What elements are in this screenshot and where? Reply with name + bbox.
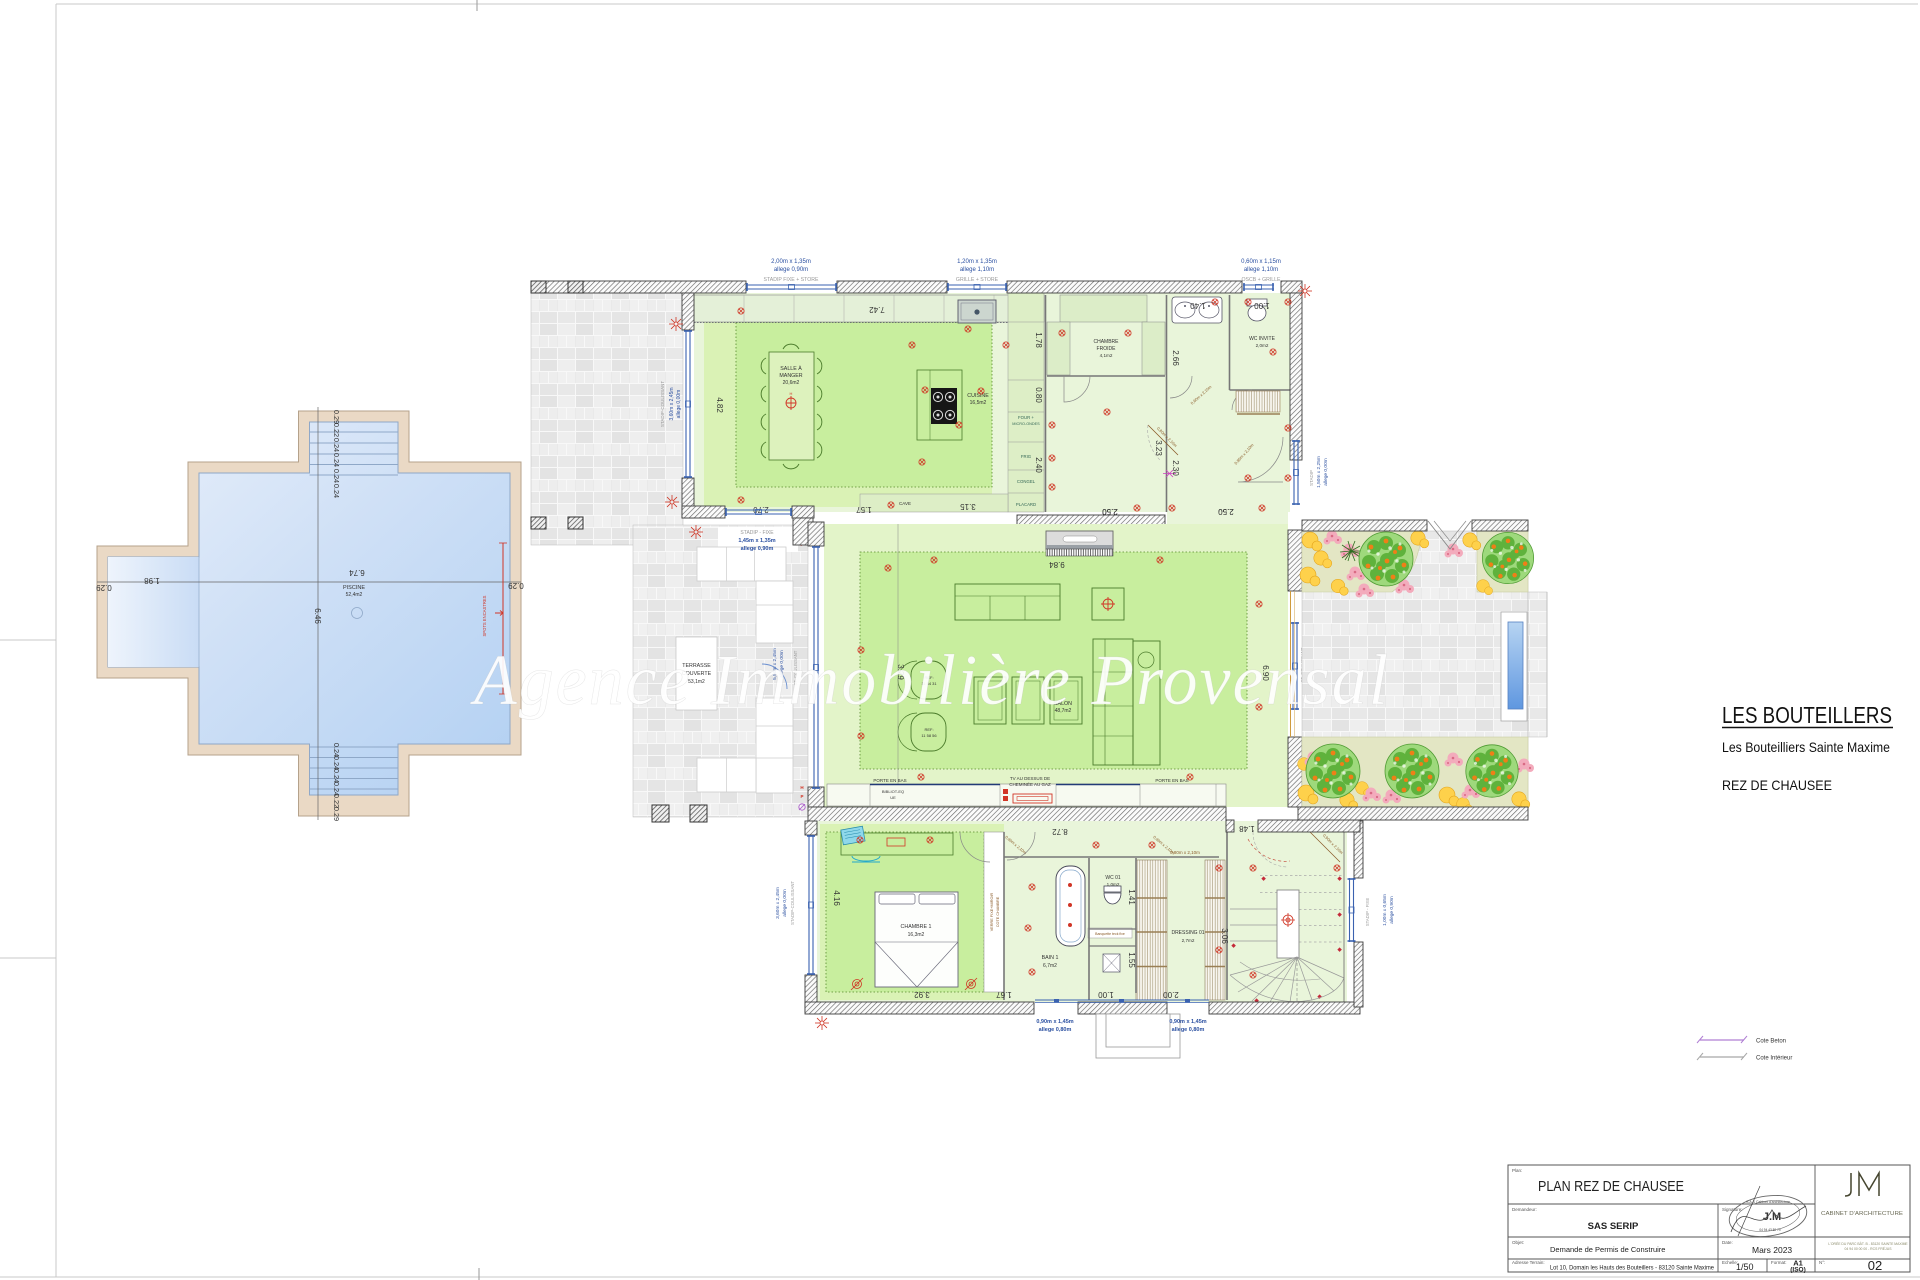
- svg-text:MANGER: MANGER: [779, 373, 802, 379]
- svg-text:(ISO): (ISO): [1790, 1267, 1806, 1274]
- svg-text:PLACARD: PLACARD: [1016, 502, 1036, 507]
- svg-text:allege 0,90m: allege 0,90m: [741, 546, 774, 552]
- svg-text:CHAMBRE: CHAMBRE: [1093, 339, 1119, 345]
- svg-text:0.29: 0.29: [96, 583, 112, 592]
- svg-text:Cote Beton: Cote Beton: [1756, 1039, 1786, 1045]
- svg-text:SALLE À: SALLE À: [780, 365, 802, 372]
- svg-text:allege 1,10m: allege 1,10m: [1244, 267, 1278, 273]
- svg-text:allege 0,80m: allege 0,80m: [1172, 1027, 1205, 1033]
- svg-text:STADIP-COULISSANT: STADIP-COULISSANT: [660, 381, 665, 427]
- svg-text:1/50: 1/50: [1736, 1262, 1754, 1272]
- svg-text:UE: UE: [890, 795, 896, 800]
- svg-text:1.00: 1.00: [1254, 301, 1270, 310]
- svg-text:1,0m2: 1,0m2: [1107, 882, 1120, 887]
- svg-text:02: 02: [1868, 1258, 1882, 1273]
- svg-text:1.40: 1.40: [1190, 301, 1206, 310]
- svg-text:4.82: 4.82: [715, 397, 724, 413]
- svg-text:Banquette teck fixe: Banquette teck fixe: [1095, 932, 1125, 936]
- svg-text:1.00: 1.00: [1098, 990, 1114, 999]
- svg-text:allege 0,00m: allege 0,00m: [782, 889, 788, 916]
- svg-text:04 94 00 00 00 - RCS FRÉJUS: 04 94 00 00 00 - RCS FRÉJUS: [1845, 1246, 1893, 1251]
- svg-text:0.29: 0.29: [508, 581, 524, 590]
- svg-text:0,80m x 2,10m: 0,80m x 2,10m: [1170, 850, 1200, 855]
- svg-text:0,60m x 1,15m: 0,60m x 1,15m: [1241, 259, 1281, 265]
- svg-text:Les Bouteilliers Sainte Maxime: Les Bouteilliers Sainte Maxime: [1722, 739, 1890, 755]
- svg-text:2,7m2: 2,7m2: [1182, 938, 1195, 943]
- svg-text:2.40: 2.40: [1034, 457, 1043, 473]
- svg-text:6,7m2: 6,7m2: [1043, 963, 1057, 969]
- svg-text:PORTE EN BAS: PORTE EN BAS: [873, 778, 906, 783]
- svg-text:allege 1,10m: allege 1,10m: [960, 267, 994, 273]
- svg-text:4.16: 4.16: [832, 890, 841, 906]
- svg-text:16,3m2: 16,3m2: [908, 932, 925, 938]
- svg-text:0.24: 0.24: [332, 469, 341, 483]
- svg-text:Date:: Date:: [1722, 1240, 1733, 1245]
- svg-text:FOUR +: FOUR +: [1018, 415, 1034, 420]
- svg-text:SAS SERIP: SAS SERIP: [1588, 1221, 1639, 1232]
- svg-text:7.42: 7.42: [869, 305, 885, 314]
- svg-text:8.72: 8.72: [1052, 827, 1068, 836]
- svg-text:2.00: 2.00: [1163, 990, 1179, 999]
- svg-text:2.66: 2.66: [1171, 350, 1180, 366]
- svg-text:1,00m x 0,65m: 1,00m x 0,65m: [1382, 894, 1388, 926]
- svg-text:1,45m x 1,35m: 1,45m x 1,35m: [738, 538, 775, 544]
- svg-text:3.06: 3.06: [1220, 928, 1229, 944]
- svg-text:2.30: 2.30: [1171, 460, 1180, 476]
- svg-text:BAIN 1: BAIN 1: [1042, 955, 1059, 961]
- svg-text:CABINET D'ARCHITECTURE: CABINET D'ARCHITECTURE: [1821, 1211, 1904, 1217]
- svg-text:9.84: 9.84: [1049, 560, 1065, 569]
- svg-text:Demandeur:: Demandeur:: [1512, 1207, 1537, 1212]
- svg-text:STADIP: STADIP: [1309, 470, 1314, 486]
- svg-text:OSCB + GRILLE: OSCB + GRILLE: [1241, 277, 1281, 283]
- svg-text:STADIP FIXE + STORE: STADIP FIXE + STORE: [764, 277, 819, 283]
- svg-text:0,90m x 1,45m: 0,90m x 1,45m: [1169, 1019, 1206, 1025]
- svg-text:L'ORÉE DU PARC BÂT. B - 83120: L'ORÉE DU PARC BÂT. B - 83120 SAINTE MAX…: [1828, 1241, 1908, 1246]
- svg-text:H: H: [800, 785, 803, 790]
- svg-text:3,60m x 2,45m: 3,60m x 2,45m: [775, 887, 781, 919]
- svg-text:Adresse Terrain:: Adresse Terrain:: [1512, 1260, 1545, 1265]
- svg-text:CUISINE: CUISINE: [967, 393, 989, 399]
- svg-text:LES BOUTEILLERS: LES BOUTEILLERS: [1722, 702, 1892, 728]
- svg-text:REF:: REF:: [924, 727, 933, 732]
- svg-text:2.50: 2.50: [1218, 507, 1234, 516]
- svg-text:H: H: [790, 391, 793, 396]
- svg-text:1.57: 1.57: [856, 505, 872, 514]
- svg-text:allege 0,90m: allege 0,90m: [774, 267, 808, 273]
- svg-text:0,90m x 1,45m: 0,90m x 1,45m: [1036, 1019, 1073, 1025]
- svg-text:Agence Immobilière Provensal: Agence Immobilière Provensal: [470, 640, 1390, 720]
- svg-text:0.80: 0.80: [1034, 387, 1043, 403]
- svg-text:CONGEL: CONGEL: [1017, 479, 1036, 484]
- svg-text:6.74: 6.74: [349, 568, 365, 577]
- svg-text:0.24: 0.24: [332, 484, 341, 498]
- svg-text:allege 0,00m: allege 0,00m: [676, 390, 682, 419]
- svg-text:Cote Intérieur: Cote Intérieur: [1756, 1056, 1792, 1062]
- svg-text:PLAN REZ DE CHAUSEE: PLAN REZ DE CHAUSEE: [1538, 1178, 1684, 1195]
- svg-text:MICRO-ONDES: MICRO-ONDES: [1012, 422, 1040, 426]
- svg-text:WC INVITE: WC INVITE: [1249, 336, 1275, 342]
- svg-text:Mars 2023: Mars 2023: [1752, 1245, 1792, 1255]
- svg-text:52,4m2: 52,4m2: [346, 592, 363, 598]
- svg-text:16,5m2: 16,5m2: [970, 400, 987, 406]
- svg-text:1.55: 1.55: [1127, 952, 1136, 968]
- svg-text:1.41: 1.41: [1127, 889, 1136, 905]
- svg-text:4,1m2: 4,1m2: [1100, 353, 1113, 358]
- svg-text:PISCINE: PISCINE: [343, 585, 365, 591]
- svg-text:CHAMBRE 1: CHAMBRE 1: [901, 924, 932, 930]
- svg-text:allege 0,00m: allege 0,00m: [1323, 458, 1329, 485]
- svg-text:1.98: 1.98: [144, 576, 160, 585]
- svg-text:2,0m2: 2,0m2: [1256, 343, 1269, 348]
- svg-text:1.48: 1.48: [1239, 824, 1255, 833]
- svg-text:BIBLIOT-EQ: BIBLIOT-EQ: [882, 789, 904, 794]
- svg-text:2.50: 2.50: [1102, 507, 1118, 516]
- svg-text:3.15: 3.15: [960, 502, 976, 511]
- svg-text:Demande de Permis de Construir: Demande de Permis de Construire: [1550, 1245, 1665, 1254]
- svg-text:1.78: 1.78: [1034, 332, 1043, 348]
- svg-text:COTE CHAMBRE: COTE CHAMBRE: [996, 896, 1000, 927]
- svg-text:0.24: 0.24: [332, 453, 341, 467]
- svg-text:STADIP - FIXE: STADIP - FIXE: [1365, 898, 1370, 927]
- svg-text:Lot 10, Domain les Hauts des B: Lot 10, Domain les Hauts des Bouteillers…: [1550, 1265, 1715, 1272]
- svg-text:3.92: 3.92: [914, 990, 930, 999]
- svg-text:0.24: 0.24: [332, 438, 341, 452]
- svg-text:Plan:: Plan:: [1512, 1168, 1522, 1173]
- svg-text:VERRE FIXE+MIROIR: VERRE FIXE+MIROIR: [990, 892, 994, 931]
- svg-text:allege 0,90m: allege 0,90m: [1389, 896, 1395, 923]
- svg-text:STADIP - FIXE: STADIP - FIXE: [740, 530, 774, 536]
- svg-text:REZ DE CHAUSEE: REZ DE CHAUSEE: [1722, 777, 1832, 793]
- svg-text:0.29: 0.29: [332, 807, 341, 821]
- svg-text:DRESSING 01: DRESSING 01: [1171, 930, 1204, 936]
- svg-text:0.22: 0.22: [332, 423, 341, 437]
- svg-text:WC 01: WC 01: [1105, 875, 1121, 881]
- svg-text:3,60m x 2,45m: 3,60m x 2,45m: [669, 387, 675, 420]
- svg-text:CHEMINÉE AU GAZ: CHEMINÉE AU GAZ: [1009, 781, 1051, 787]
- svg-text:6.46: 6.46: [313, 608, 322, 624]
- svg-text:N°:: N°:: [1819, 1260, 1825, 1265]
- svg-text:04 94 43 80 79: 04 94 43 80 79: [1759, 1228, 1780, 1232]
- svg-text:Objet:: Objet:: [1512, 1240, 1524, 1245]
- svg-text:FRIG: FRIG: [1021, 454, 1032, 459]
- svg-text:allege 0,80m: allege 0,80m: [1039, 1027, 1072, 1033]
- svg-text:3.23: 3.23: [1154, 440, 1163, 456]
- svg-text:2,00m x 1,35m: 2,00m x 1,35m: [771, 259, 811, 265]
- svg-text:TV AU DESSUS DE: TV AU DESSUS DE: [1010, 776, 1050, 781]
- svg-text:11 58 56: 11 58 56: [921, 733, 937, 738]
- svg-text:1.67: 1.67: [996, 990, 1012, 999]
- svg-text:PORTE EN BAS: PORTE EN BAS: [1155, 778, 1188, 783]
- svg-text:SPOTS ENCASTRES: SPOTS ENCASTRES: [482, 595, 487, 636]
- svg-text:FROIDE: FROIDE: [1097, 346, 1117, 352]
- svg-text:1,20m x 1,35m: 1,20m x 1,35m: [957, 259, 997, 265]
- svg-text:Format:: Format:: [1771, 1260, 1787, 1265]
- svg-text:P: P: [800, 794, 803, 799]
- svg-text:STADIP-COULISSANT: STADIP-COULISSANT: [790, 881, 795, 925]
- svg-text:CAVE: CAVE: [899, 501, 911, 506]
- svg-text:1,50m x 2,25m: 1,50m x 2,25m: [1316, 456, 1322, 488]
- svg-text:20,6m2: 20,6m2: [783, 380, 800, 386]
- svg-text:GRILLE + STORE: GRILLE + STORE: [956, 277, 999, 283]
